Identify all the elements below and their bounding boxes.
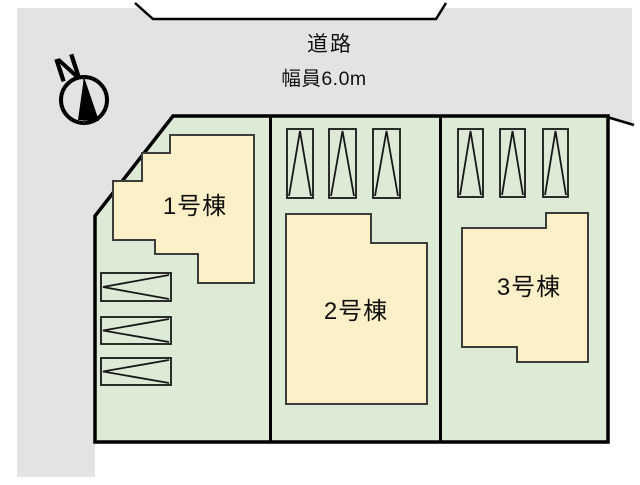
road-width-label: 幅員6.0m: [281, 68, 366, 90]
building-1-label: 1号棟: [163, 193, 227, 220]
building-2-label: 2号棟: [324, 298, 388, 325]
site-plan-drawing: 道路 幅員6.0m N: [0, 0, 640, 485]
road-far-edge-line: [135, 3, 446, 19]
road-label: 道路: [307, 33, 353, 56]
site-plan: 道路 幅員6.0m N: [0, 0, 640, 485]
building-3-label: 3号棟: [497, 274, 561, 301]
